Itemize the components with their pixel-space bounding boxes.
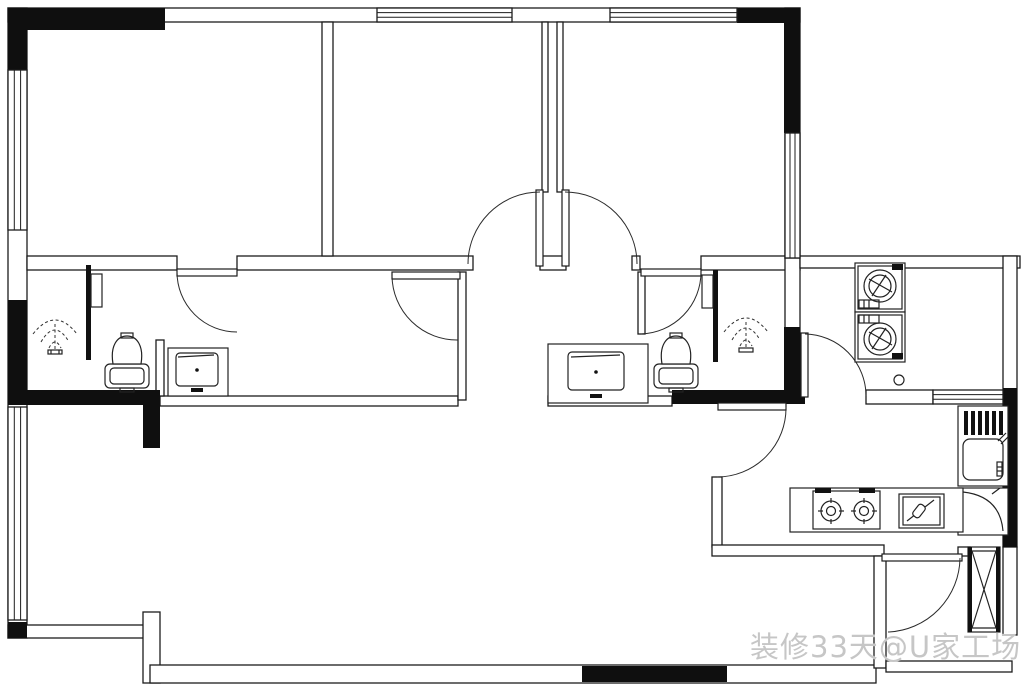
vanity-sink-icon [548,344,648,403]
toilet-icon [654,333,698,392]
shower-spray-icon [724,318,768,352]
toilet-icon [105,333,149,392]
door-swing-icon [717,403,786,477]
window-icon [377,8,512,22]
window-icon [785,133,800,258]
window-icon [8,70,27,230]
door-swing-icon [392,272,460,340]
fixtures [33,263,1008,632]
floor-plan-page: 装修33天@U家工场 [0,0,1032,692]
door-swing-icon [177,269,237,332]
glass-partition-icon [86,265,102,360]
window-icon [8,407,27,620]
watermark-text: 装修33天@U家工场 [750,624,1030,666]
door-swing-icon [468,190,543,266]
vanity-sink-icon [168,348,228,396]
washing-machine-icon [855,263,905,312]
shower-spray-icon [33,320,77,354]
window-icon [610,8,737,22]
duct-shaft-icon [968,547,1000,632]
door-swing-icon [641,269,701,334]
door-swing-icon [562,190,637,266]
floor-drain-icon [894,375,904,385]
cutting-board-icon [899,494,944,528]
kitchen-sink-icon [958,406,1008,486]
glass-partition-icon [702,270,718,362]
entry-door-icon [882,554,962,632]
corner-cabinet-icon [958,488,1008,535]
window-icon [933,390,1003,404]
washing-machine-icon [855,312,905,362]
floor-plan-canvas [0,0,1032,692]
